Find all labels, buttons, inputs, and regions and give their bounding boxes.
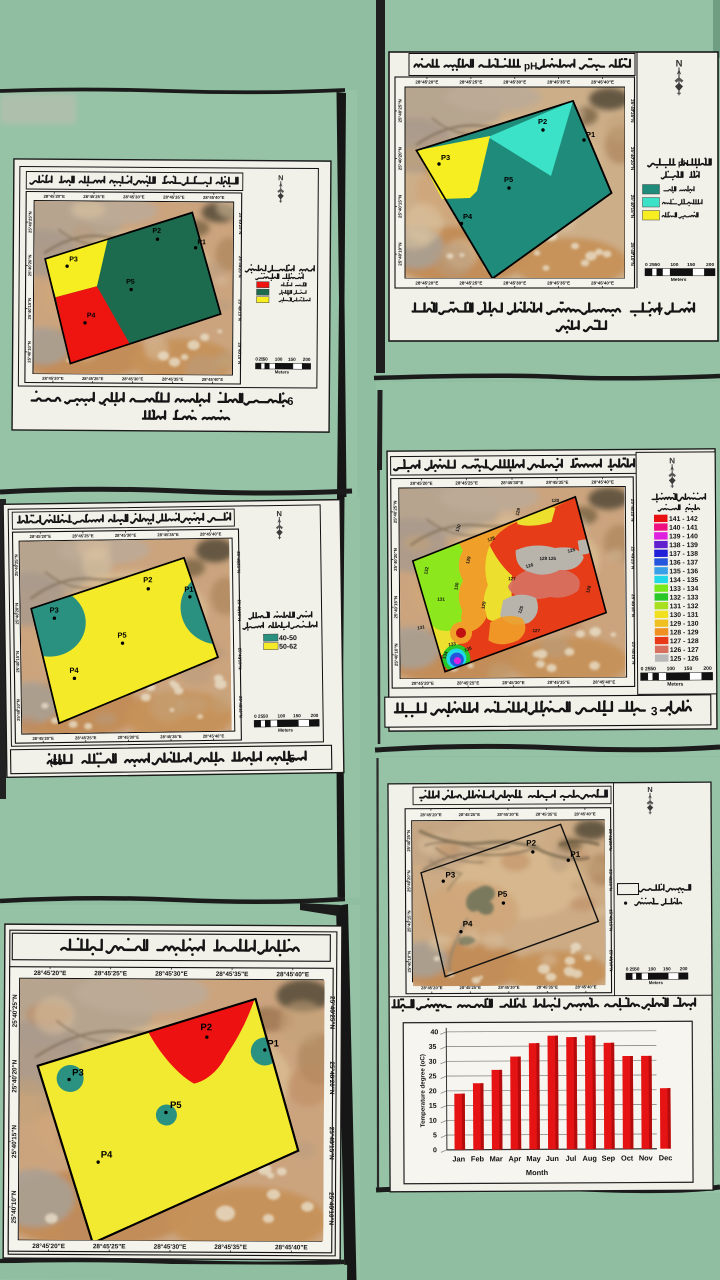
svg-text:125 - 126: 125 - 126 (670, 656, 699, 663)
svg-text:P4: P4 (87, 312, 96, 319)
svg-text:25°40'25"N: 25°40'25"N (630, 99, 635, 122)
svg-text:131 - 132: 131 - 132 (670, 603, 699, 610)
svg-text:P3: P3 (69, 256, 78, 263)
svg-text:25°40'15"N: 25°40'15"N (406, 910, 411, 932)
svg-text:139 - 140: 139 - 140 (669, 533, 698, 540)
svg-text:pH: pH (524, 62, 537, 73)
svg-text:25°40'10"N: 25°40'10"N (16, 699, 21, 721)
svg-text:141 - 142: 141 - 142 (669, 516, 698, 523)
svg-text:127: 127 (508, 576, 516, 581)
svg-text:25°40'20"N: 25°40'20"N (630, 546, 635, 569)
svg-text:P3: P3 (445, 870, 455, 879)
svg-text:P5: P5 (170, 1100, 182, 1111)
svg-text:Meters: Meters (649, 980, 664, 985)
svg-text:25°40'25"N: 25°40'25"N (236, 551, 241, 573)
svg-text:25°40'15"N: 25°40'15"N (328, 1127, 336, 1160)
svg-text:25°40'10"N: 25°40'10"N (394, 643, 399, 666)
svg-text:25°40'15"N: 25°40'15"N (27, 298, 32, 320)
svg-text:P5: P5 (117, 631, 126, 640)
svg-text:Temperature degree (oC): Temperature degree (oC) (419, 1054, 426, 1127)
svg-text:25°40'20"N: 25°40'20"N (630, 147, 635, 170)
svg-text:127 - 128: 127 - 128 (670, 638, 699, 645)
svg-text:25°40'10"N: 25°40'10"N (10, 1190, 18, 1223)
svg-text:25°40'25"N: 25°40'25"N (398, 99, 403, 122)
svg-text:Month: Month (526, 1168, 549, 1177)
svg-text:25°40'25"N: 25°40'25"N (393, 501, 398, 524)
svg-text:25°40'20"N: 25°40'20"N (328, 1061, 336, 1094)
svg-text:3: 3 (651, 704, 658, 718)
svg-text:25°40'15"N: 25°40'15"N (608, 909, 613, 931)
svg-text:131: 131 (437, 597, 445, 602)
svg-text:25°40'25"N: 25°40'25"N (238, 213, 243, 235)
svg-text:5: 5 (289, 753, 295, 765)
svg-text:25°40'15"N: 25°40'15"N (631, 594, 636, 617)
svg-text:P3: P3 (441, 153, 450, 162)
svg-text:130 - 131: 130 - 131 (670, 612, 699, 619)
svg-text:136 - 137: 136 - 137 (669, 559, 698, 566)
svg-text:25°40'15"N: 25°40'15"N (237, 648, 242, 670)
svg-text:25°40'25"N: 25°40'25"N (14, 554, 19, 576)
svg-text:P1: P1 (570, 850, 580, 859)
svg-text:N: N (669, 456, 675, 465)
svg-text:25°40'10"N: 25°40'10"N (27, 341, 32, 363)
svg-text:25°40'20"N: 25°40'20"N (398, 147, 403, 170)
svg-text:25°40'10"N: 25°40'10"N (238, 696, 243, 718)
svg-text:N: N (647, 785, 652, 794)
svg-text:25°40'20"N: 25°40'20"N (237, 600, 242, 622)
svg-text:25°40'20"N: 25°40'20"N (608, 869, 613, 891)
svg-text:P1: P1 (184, 585, 193, 594)
svg-text:25°40'10"N: 25°40'10"N (407, 951, 412, 973)
svg-text:P4: P4 (101, 1150, 113, 1161)
svg-text:127: 127 (532, 628, 540, 633)
svg-text:135 - 136: 135 - 136 (669, 568, 698, 575)
svg-text:P1: P1 (197, 239, 206, 246)
svg-text:Meters: Meters (278, 727, 293, 732)
svg-text:25°40'10"N: 25°40'10"N (237, 343, 242, 365)
svg-text:(50: (50 (50, 757, 63, 767)
svg-text:N: N (278, 173, 283, 182)
svg-text:126 - 127: 126 - 127 (670, 647, 699, 654)
svg-text:25°40'15"N: 25°40'15"N (15, 651, 20, 673)
svg-text:P1: P1 (586, 130, 595, 139)
svg-text:Meters: Meters (671, 277, 687, 283)
svg-text:25°40'10"N: 25°40'10"N (398, 242, 403, 265)
svg-text:25°40'25"N: 25°40'25"N (406, 830, 411, 852)
svg-text:P2: P2 (538, 117, 547, 126)
svg-text:Meters: Meters (667, 682, 683, 688)
svg-text:25°40'20"N: 25°40'20"N (27, 255, 32, 277)
svg-text:40-50: 40-50 (279, 635, 297, 642)
svg-text:25°40'15"N: 25°40'15"N (630, 195, 635, 218)
svg-text:134 - 135: 134 - 135 (669, 577, 698, 584)
svg-text:140 - 141: 140 - 141 (669, 525, 698, 532)
svg-text:P4: P4 (463, 212, 473, 221)
svg-text:120: 120 (552, 498, 560, 503)
svg-text:25°40'10"N: 25°40'10"N (631, 642, 636, 665)
svg-text:25°40'25"N: 25°40'25"N (608, 829, 613, 851)
svg-text:25°40'25"N: 25°40'25"N (28, 211, 33, 233)
svg-text:6: 6 (287, 396, 293, 408)
svg-text:25°40'10"N: 25°40'10"N (609, 950, 614, 972)
svg-text:25°40'15"N: 25°40'15"N (10, 1125, 18, 1158)
svg-text:25°40'25"N: 25°40'25"N (11, 994, 19, 1027)
svg-text:P2: P2 (526, 839, 536, 848)
svg-text:N: N (276, 509, 282, 518)
svg-text:25°40'20"N: 25°40'20"N (10, 1059, 18, 1092)
svg-text:P4: P4 (463, 919, 473, 928)
svg-text:25°40'20"N: 25°40'20"N (238, 256, 243, 278)
svg-text:25°40'15"N: 25°40'15"N (393, 596, 398, 619)
svg-text:P3: P3 (50, 606, 59, 615)
svg-text:P1: P1 (267, 1039, 279, 1050)
svg-text:25°40'20"N: 25°40'20"N (14, 603, 19, 625)
svg-text:25°40'20"N: 25°40'20"N (406, 870, 411, 892)
svg-text:25°40'20"N: 25°40'20"N (393, 548, 398, 571)
svg-text:128 - 129: 128 - 129 (670, 629, 699, 636)
svg-text:P3: P3 (72, 1067, 84, 1078)
svg-text:133 - 134: 133 - 134 (669, 586, 698, 593)
svg-text:138 - 139: 138 - 139 (669, 542, 698, 549)
svg-text:25°40'25"N: 25°40'25"N (328, 996, 336, 1029)
svg-text:Meters: Meters (275, 369, 290, 374)
svg-text:25°40'15"N: 25°40'15"N (398, 195, 403, 218)
svg-text:7: 7 (657, 306, 663, 318)
svg-text:128 125: 128 125 (539, 556, 556, 561)
svg-text:129 - 130: 129 - 130 (670, 621, 699, 628)
svg-text:P2: P2 (200, 1022, 212, 1033)
svg-text:25°40'15"N: 25°40'15"N (237, 299, 242, 321)
svg-text:25°40'10"N: 25°40'10"N (327, 1192, 335, 1225)
svg-text:25°40'10"N: 25°40'10"N (630, 242, 635, 265)
svg-text:50-62: 50-62 (279, 644, 297, 651)
svg-text:P4: P4 (69, 666, 79, 675)
svg-text:P5: P5 (126, 279, 135, 286)
svg-text:pH: pH (678, 159, 689, 168)
svg-text:P5: P5 (498, 890, 508, 899)
svg-text:137 - 138: 137 - 138 (669, 551, 698, 558)
svg-text:P5: P5 (504, 175, 513, 184)
svg-text:132 - 133: 132 - 133 (670, 594, 699, 601)
svg-text:P2: P2 (152, 228, 161, 235)
svg-text:P2: P2 (143, 575, 152, 584)
svg-text:25°40'25"N: 25°40'25"N (630, 499, 635, 522)
